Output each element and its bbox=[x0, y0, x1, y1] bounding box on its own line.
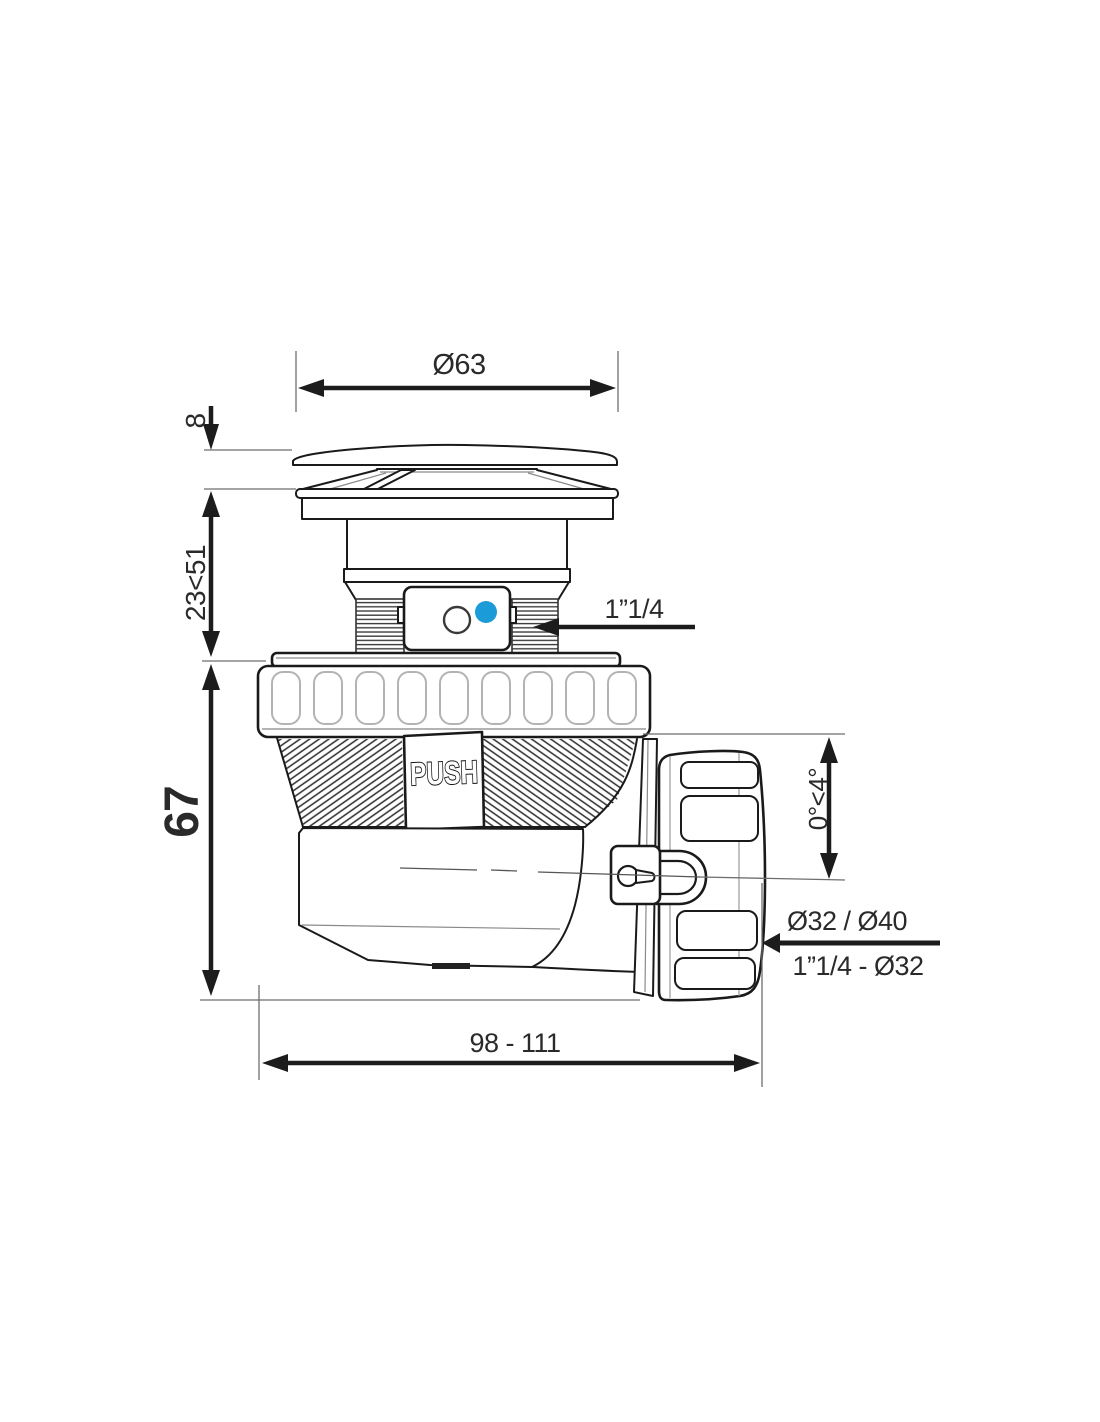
drawing-canvas: PUSH bbox=[0, 0, 1100, 1422]
cap-dome bbox=[293, 445, 617, 465]
dim-outlet-connection: Ø32 / Ø40 1”1/4 - Ø32 bbox=[762, 906, 940, 981]
dim-outlet-angle-label: 0°<4° bbox=[803, 768, 833, 830]
dim-outlet-thread-label: 1”1/4 - Ø32 bbox=[792, 951, 923, 981]
thread-left bbox=[356, 599, 404, 653]
top-flange-body bbox=[302, 498, 613, 519]
cap-underside bbox=[303, 469, 611, 490]
dim-inlet-thread-label: 1”1/4 bbox=[604, 594, 664, 624]
dim-adjustable-height-label: 23<51 bbox=[180, 545, 211, 621]
dim-adjustable-height: 23<51 bbox=[180, 491, 266, 661]
trap-body: PUSH bbox=[258, 653, 650, 972]
blue-indicator-dot bbox=[475, 601, 497, 623]
dim-body-height-label: 67 bbox=[156, 786, 209, 837]
dim-cap-height-label: 8 bbox=[180, 413, 211, 428]
dim-total-length-label: 98 - 111 bbox=[469, 1028, 560, 1058]
body-bottom-detail bbox=[432, 963, 470, 969]
push-label: PUSH bbox=[409, 754, 478, 792]
dim-outlet-sizes-label: Ø32 / Ø40 bbox=[787, 906, 907, 936]
cap-assembly bbox=[293, 445, 618, 653]
dim-cap-height: 8 bbox=[180, 406, 296, 489]
dim-cap-diameter: Ø63 bbox=[296, 349, 618, 412]
cap-crossbar bbox=[362, 470, 415, 490]
push-clip: PUSH bbox=[404, 732, 484, 830]
body-cup bbox=[299, 828, 583, 967]
neck-ring bbox=[344, 569, 570, 582]
body-bottom-edge bbox=[533, 967, 640, 972]
neck bbox=[347, 519, 567, 569]
top-flange-band bbox=[296, 489, 618, 498]
height-adjust-clip bbox=[398, 587, 516, 650]
clip-hole bbox=[444, 607, 470, 633]
dim-cap-diameter-label: Ø63 bbox=[432, 349, 485, 381]
technical-drawing: PUSH bbox=[0, 0, 1100, 1422]
